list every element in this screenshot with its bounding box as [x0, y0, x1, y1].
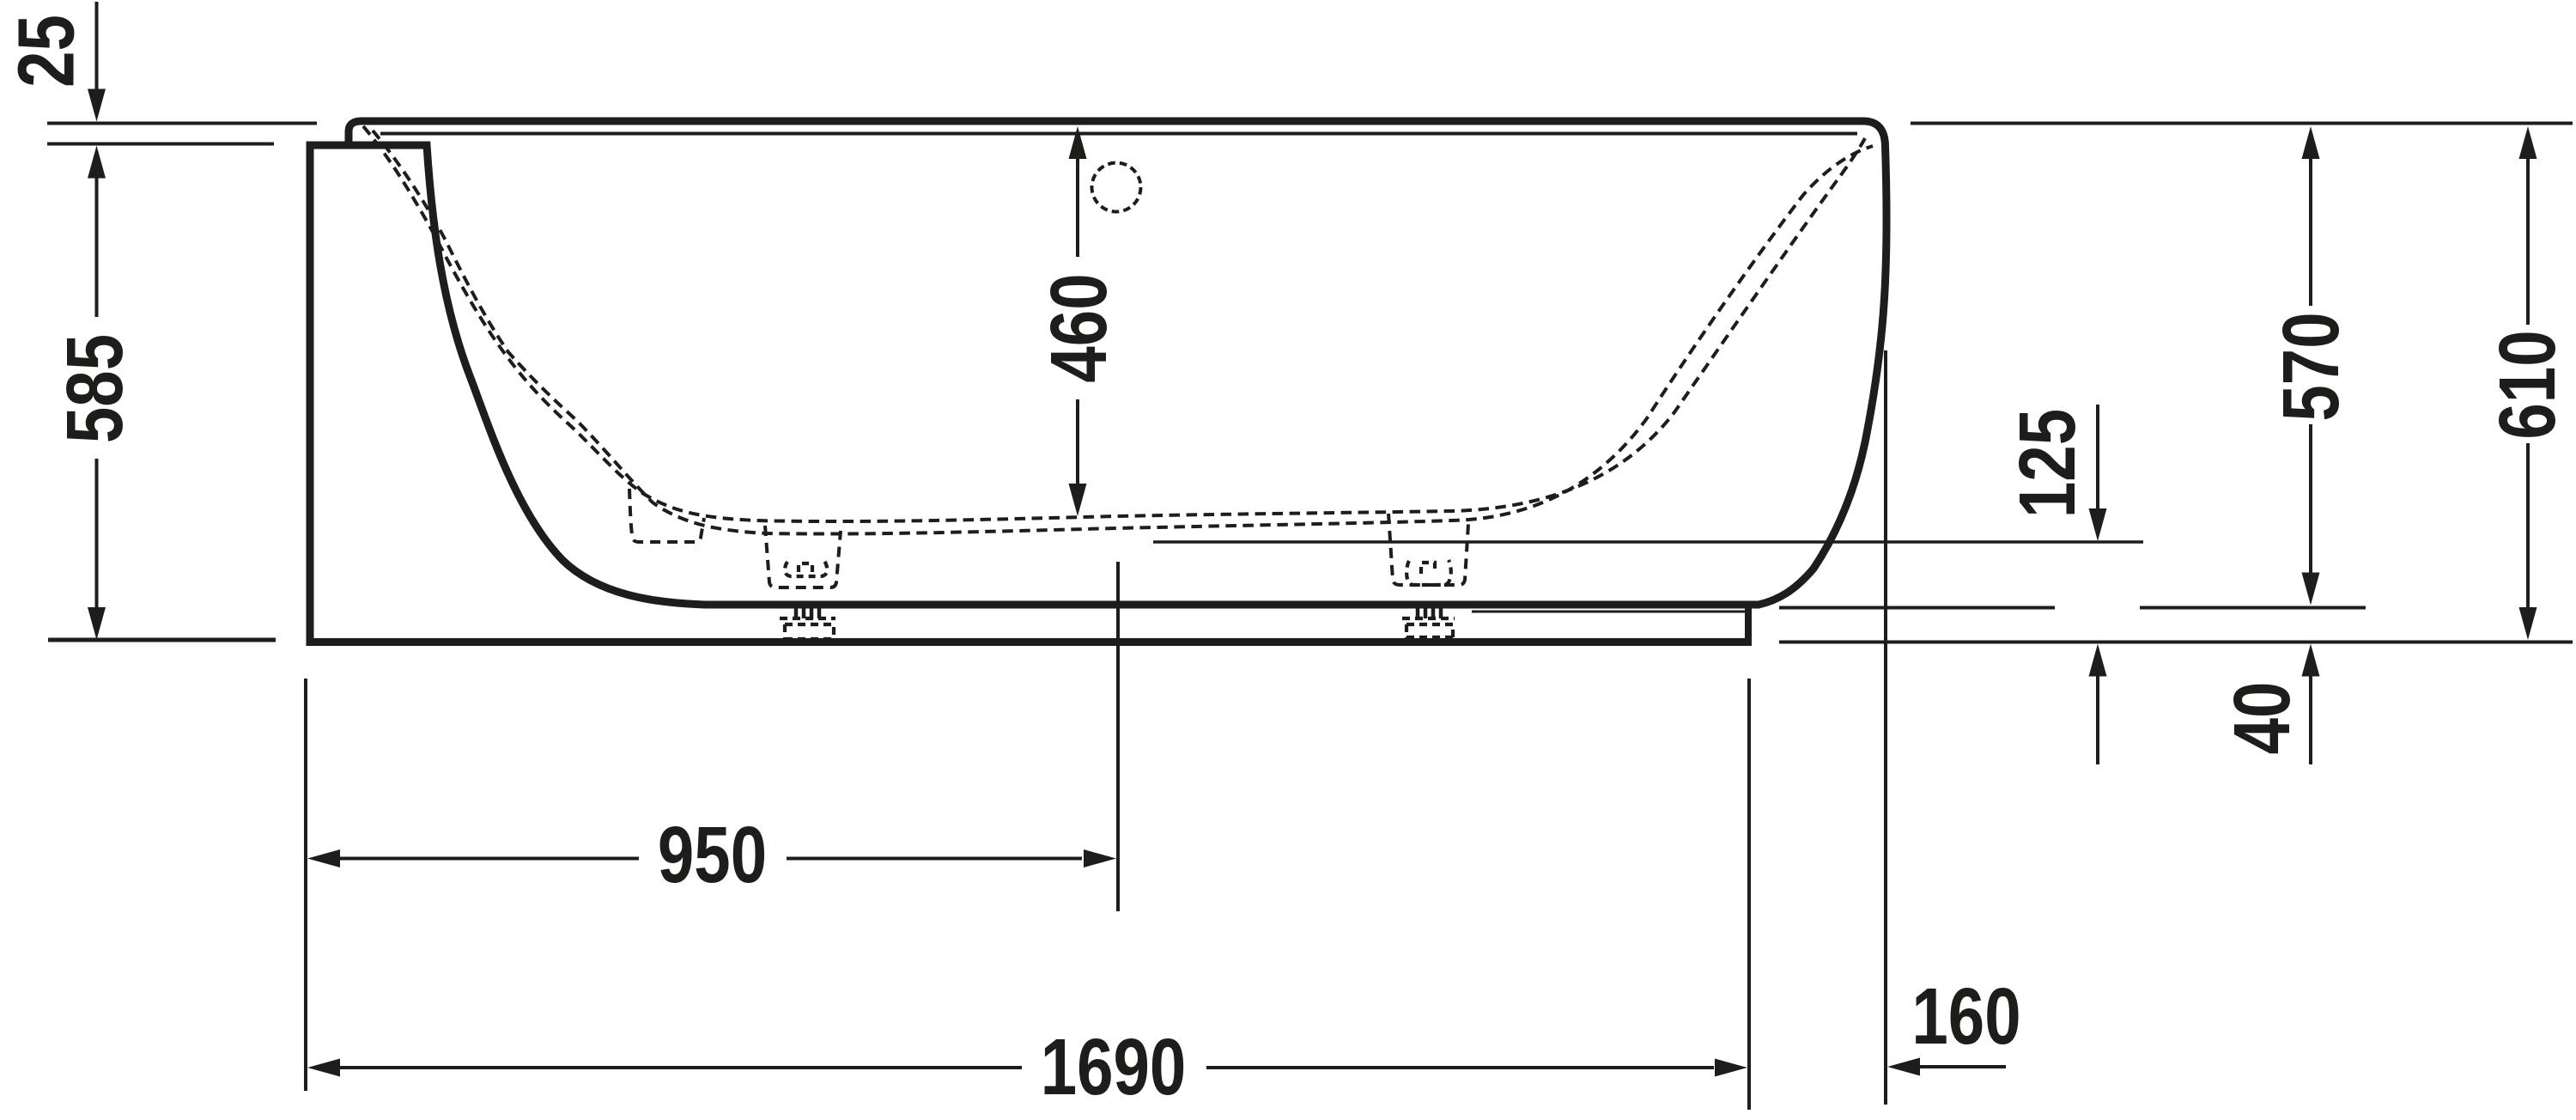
svg-text:125: 125 — [2003, 409, 2093, 518]
svg-text:25: 25 — [2, 15, 91, 88]
svg-text:1690: 1690 — [1041, 1023, 1187, 1112]
svg-text:585: 585 — [51, 334, 140, 443]
svg-text:40: 40 — [2218, 682, 2307, 755]
svg-text:460: 460 — [1035, 273, 1124, 382]
svg-text:160: 160 — [1911, 972, 2020, 1062]
svg-text:570: 570 — [2267, 312, 2356, 421]
svg-text:950: 950 — [658, 811, 767, 900]
svg-text:610: 610 — [2483, 330, 2573, 439]
